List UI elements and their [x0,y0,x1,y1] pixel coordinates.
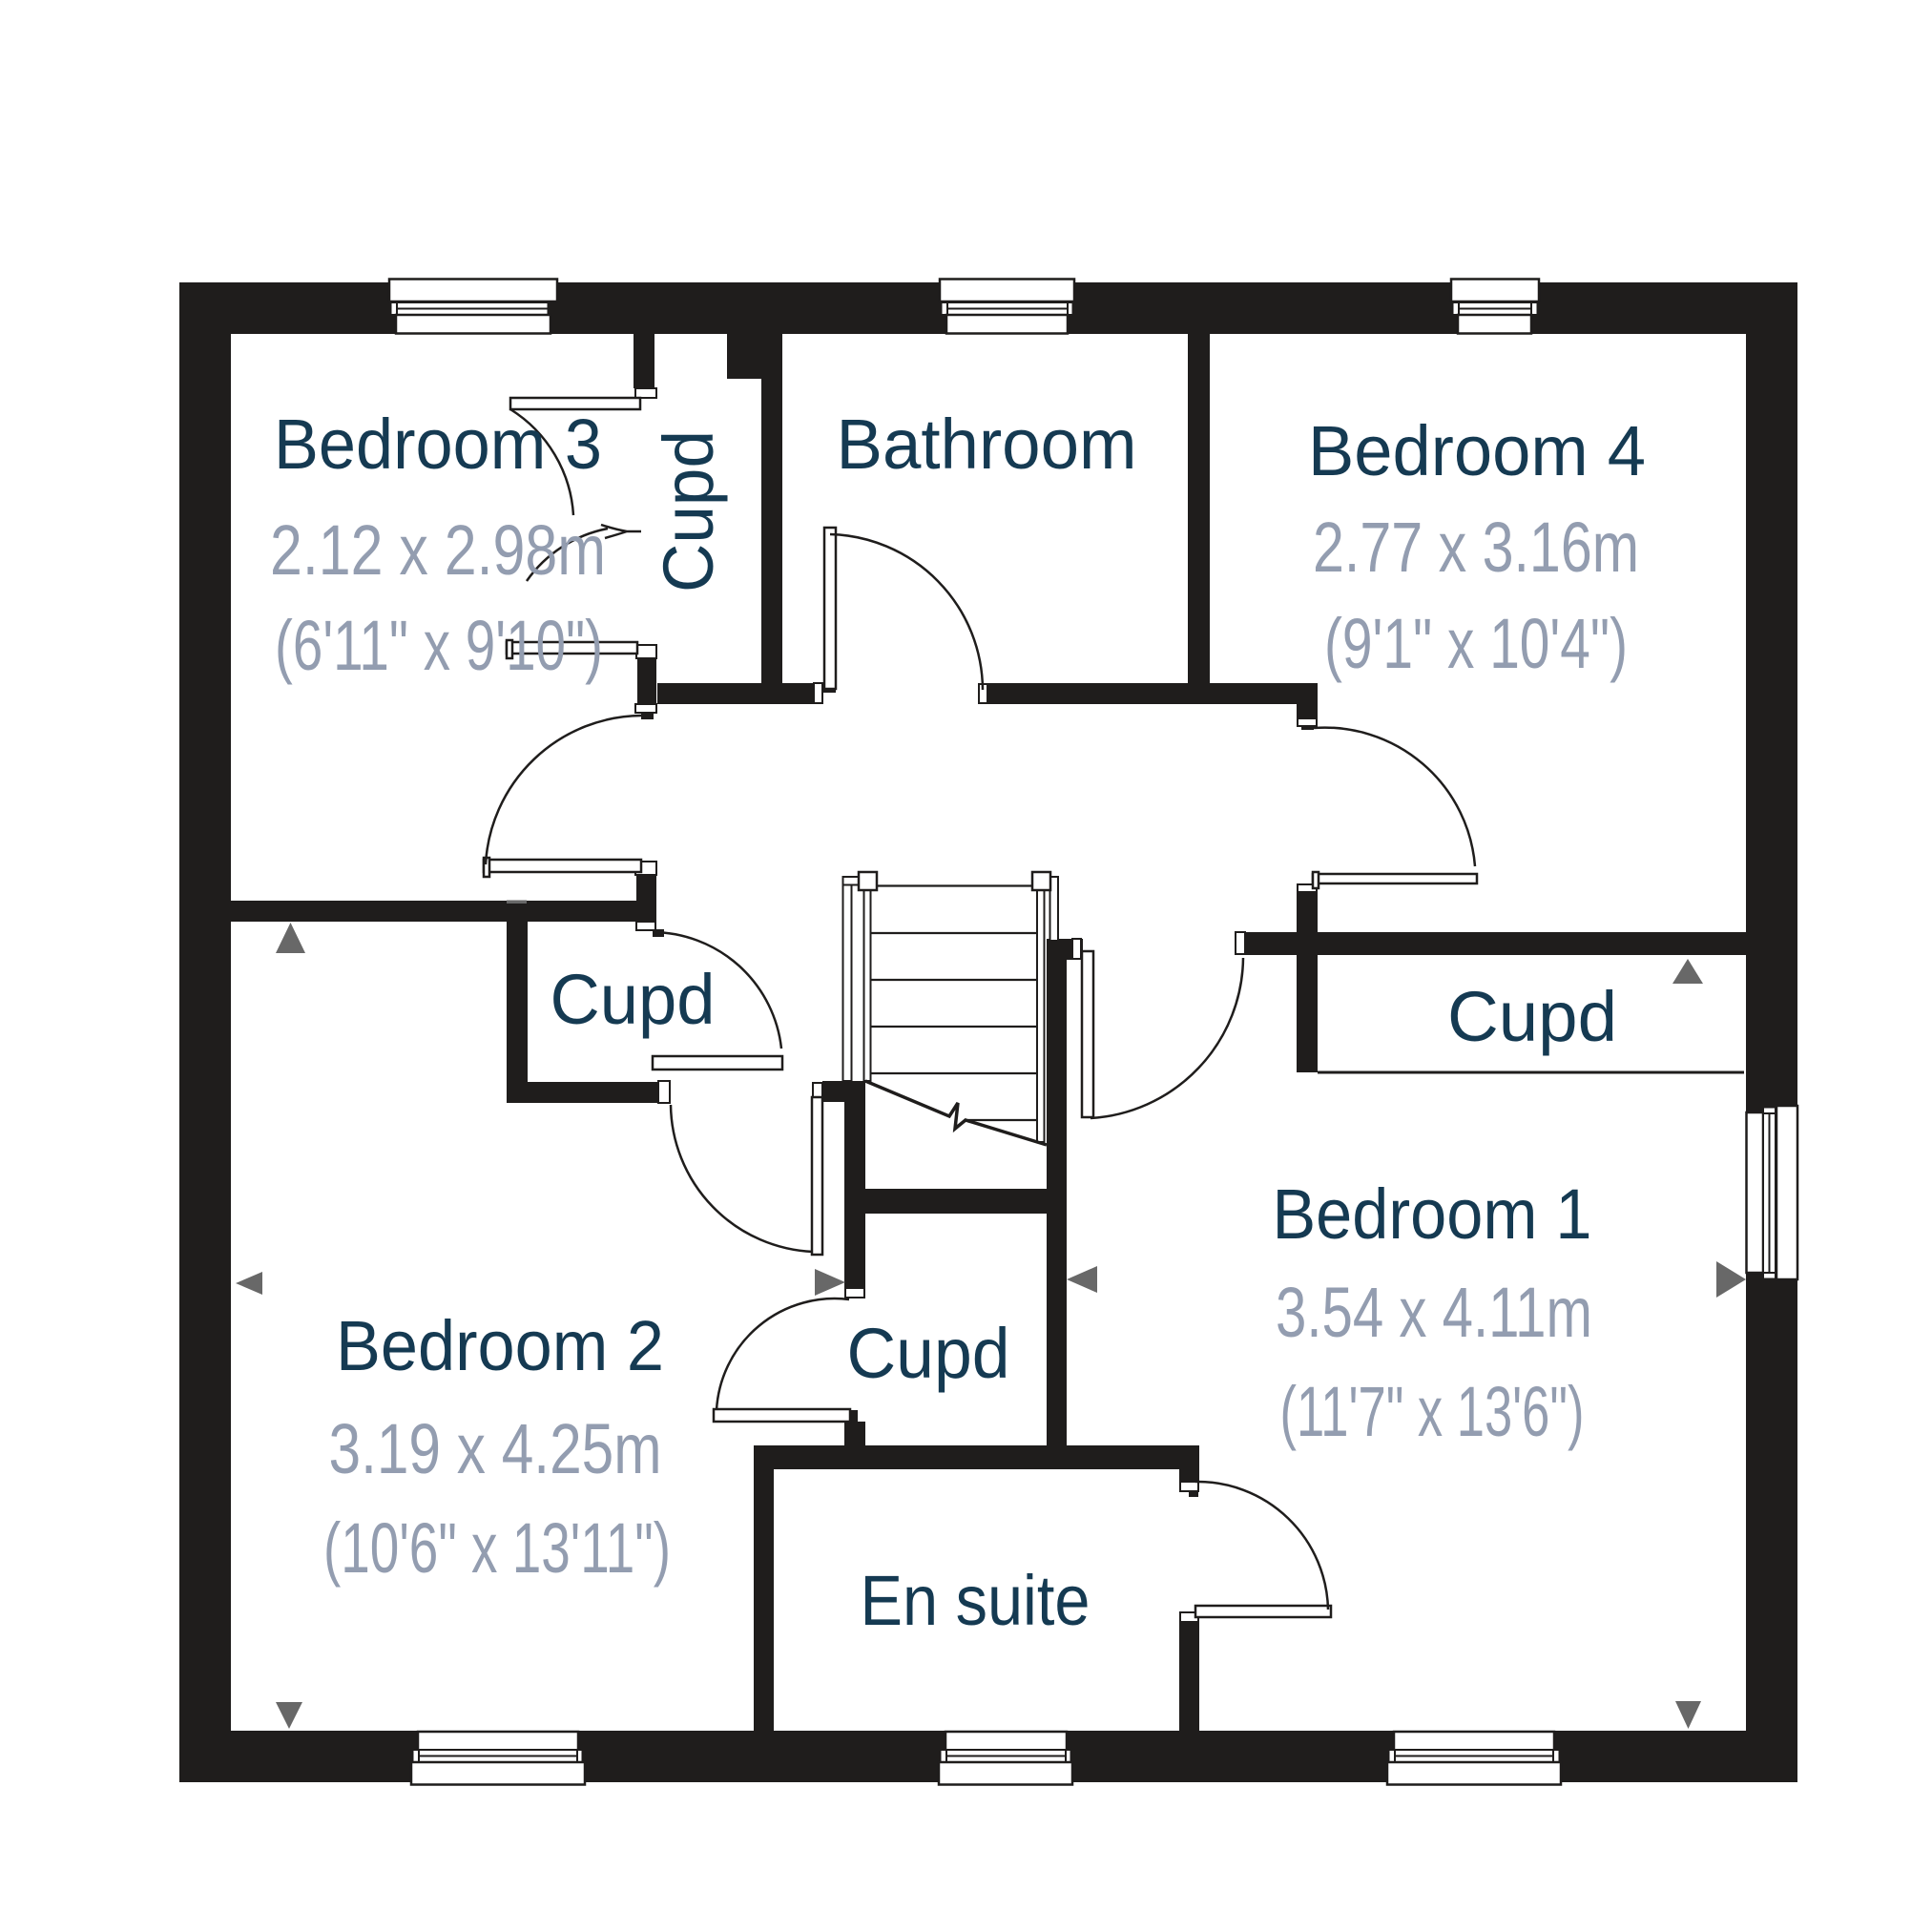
svg-text:(10'6" x 13'11"): (10'6" x 13'11") [323,1508,671,1588]
svg-text:En suite: En suite [861,1561,1091,1640]
svg-text:(6'11" x 9'10"): (6'11" x 9'10") [275,606,603,685]
svg-text:Bathroom: Bathroom [837,405,1137,484]
svg-text:Cupd: Cupd [551,960,716,1039]
svg-text:Bedroom 2: Bedroom 2 [336,1306,664,1385]
svg-text:Bedroom 1: Bedroom 1 [1273,1174,1592,1254]
svg-text:Cupd: Cupd [649,430,728,592]
svg-text:2.77 x 3.16m: 2.77 x 3.16m [1313,508,1639,587]
svg-text:Bedroom 4: Bedroom 4 [1308,411,1646,490]
svg-text:2.12 x 2.98m: 2.12 x 2.98m [270,510,606,590]
svg-text:(11'7" x 13'6"): (11'7" x 13'6") [1280,1372,1585,1451]
svg-text:3.54 x 4.11m: 3.54 x 4.11m [1276,1273,1592,1352]
svg-text:3.19 x 4.25m: 3.19 x 4.25m [329,1409,662,1488]
svg-text:Cupd: Cupd [1447,977,1617,1056]
svg-text:Bedroom 3: Bedroom 3 [274,405,602,484]
svg-text:(9'1" x 10'4"): (9'1" x 10'4") [1324,604,1628,683]
svg-text:Cupd: Cupd [847,1314,1010,1393]
